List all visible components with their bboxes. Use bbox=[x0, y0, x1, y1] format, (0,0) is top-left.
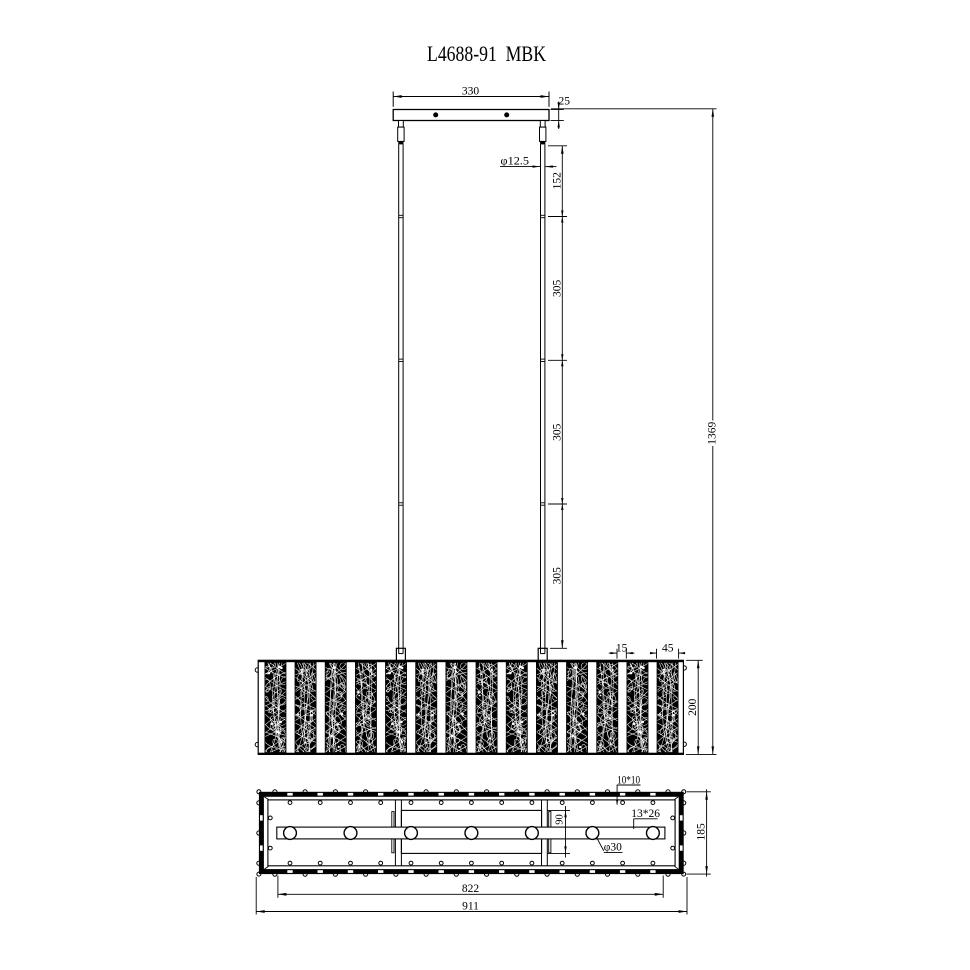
svg-text:200: 200 bbox=[687, 698, 699, 716]
svg-text:1369: 1369 bbox=[707, 421, 719, 444]
svg-text:10*10: 10*10 bbox=[617, 774, 640, 786]
svg-text:185: 185 bbox=[695, 823, 707, 841]
svg-text:13*26: 13*26 bbox=[631, 808, 660, 820]
svg-text:152: 152 bbox=[552, 172, 564, 190]
svg-text:822: 822 bbox=[462, 883, 480, 895]
svg-text:φ12.5: φ12.5 bbox=[501, 155, 530, 167]
svg-text:305: 305 bbox=[552, 423, 564, 441]
svg-text:305: 305 bbox=[552, 280, 564, 298]
svg-text:L4688-91 MBK: L4688-91 MBK bbox=[427, 41, 547, 66]
svg-text:330: 330 bbox=[462, 86, 480, 98]
svg-text:90: 90 bbox=[555, 814, 566, 825]
svg-text:25: 25 bbox=[558, 96, 570, 108]
svg-text:45: 45 bbox=[662, 643, 674, 655]
svg-text:φ30: φ30 bbox=[604, 841, 622, 853]
svg-text:15: 15 bbox=[616, 643, 628, 655]
svg-text:911: 911 bbox=[462, 900, 479, 912]
svg-text:305: 305 bbox=[552, 567, 564, 585]
